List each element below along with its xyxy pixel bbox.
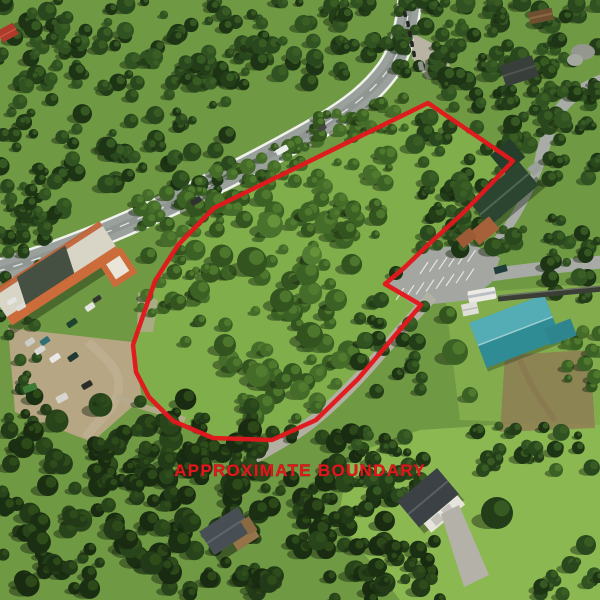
boundary-label: APPROXIMATE BOUNDARY — [174, 461, 426, 480]
aerial-photo-canvas: APPROXIMATE BOUNDARY — [0, 0, 600, 600]
aerial-photo: APPROXIMATE BOUNDARY — [0, 0, 600, 600]
